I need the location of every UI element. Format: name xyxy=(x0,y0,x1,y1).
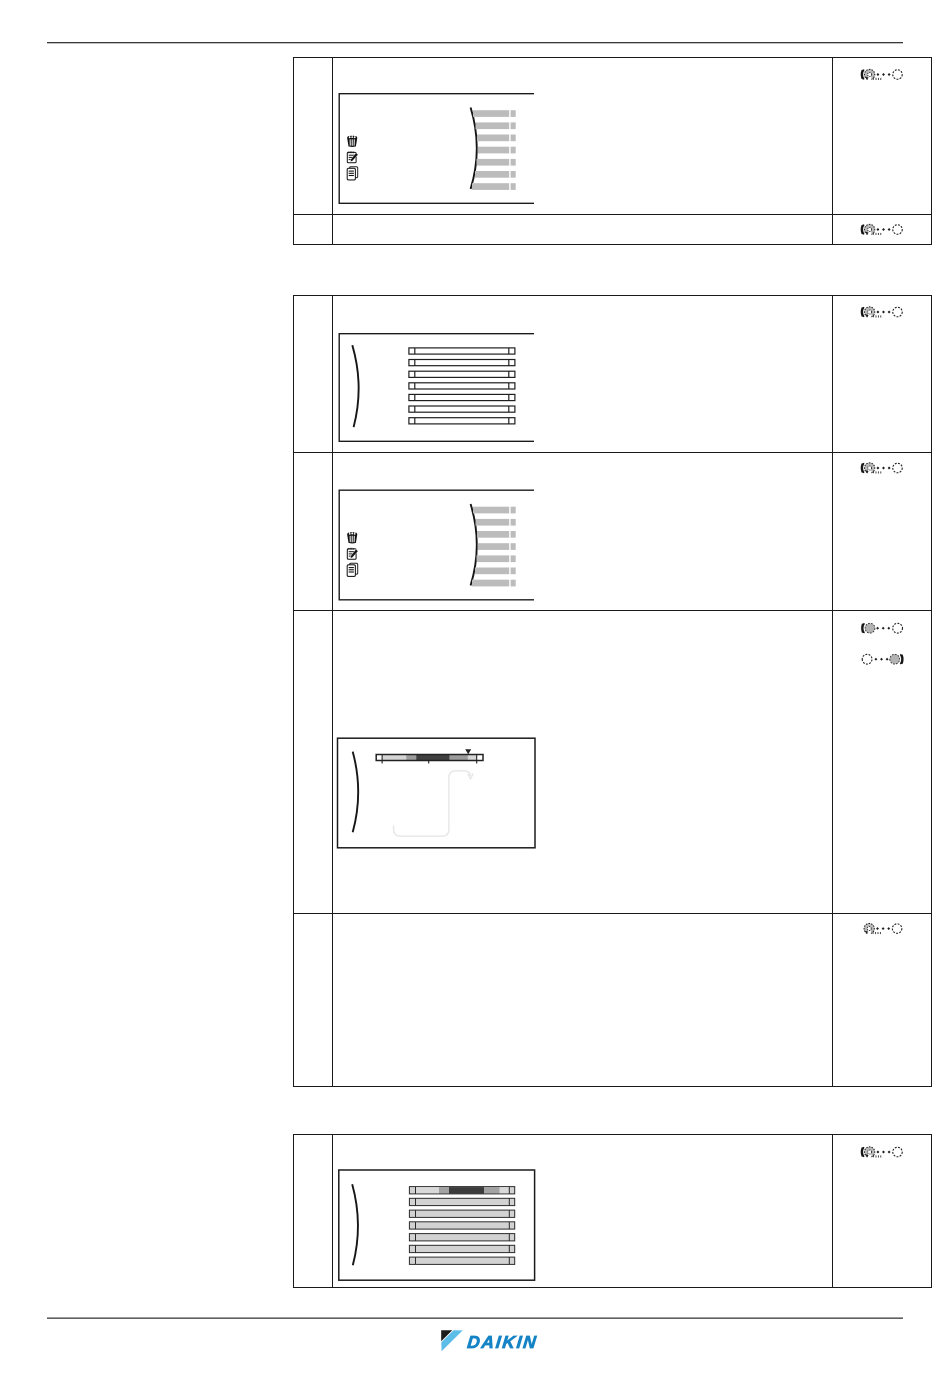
svg-text:DAIKIN: DAIKIN xyxy=(466,1332,538,1352)
